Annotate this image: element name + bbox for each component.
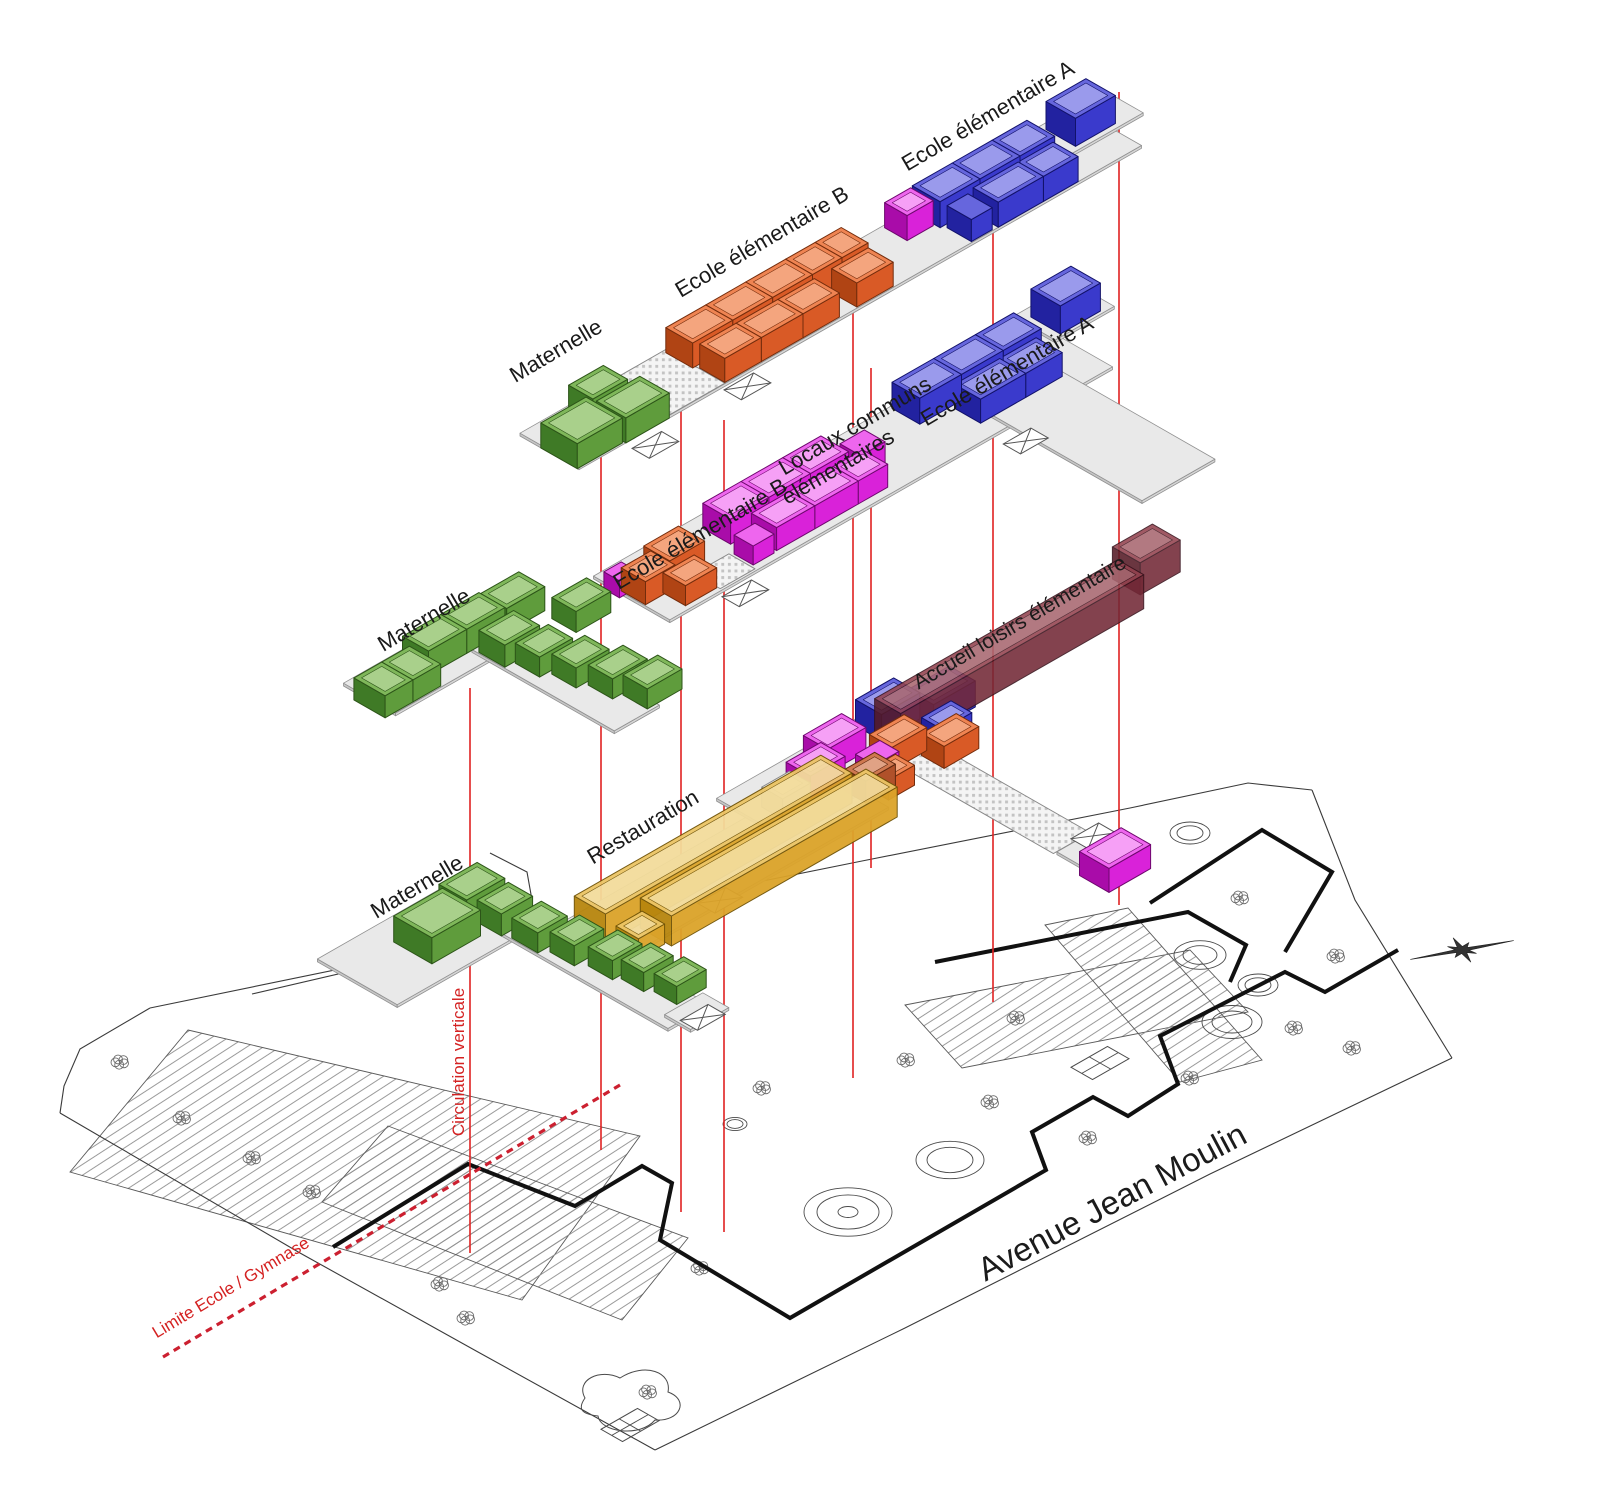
tree-icon — [111, 1055, 128, 1069]
axonometric-diagram — [0, 0, 1600, 1490]
tree-icon — [981, 1095, 998, 1109]
tree-icon — [753, 1081, 770, 1095]
tree-icon — [1327, 949, 1344, 963]
tree-icon — [1285, 1021, 1302, 1035]
tree-icon — [1231, 891, 1248, 905]
tree-icon — [1343, 1041, 1360, 1055]
compass-rose-icon — [1410, 938, 1513, 962]
block-green — [552, 578, 611, 633]
axonometric-diagram-page: Ecole élémentaire AEcole élémentaire BMa… — [0, 0, 1600, 1490]
tree-icon — [1079, 1131, 1096, 1145]
tree-icon — [431, 1277, 448, 1291]
tree-icon — [639, 1385, 656, 1399]
tree-icon — [897, 1053, 914, 1067]
block-maroon — [875, 560, 1144, 748]
tree-icon — [457, 1311, 474, 1325]
